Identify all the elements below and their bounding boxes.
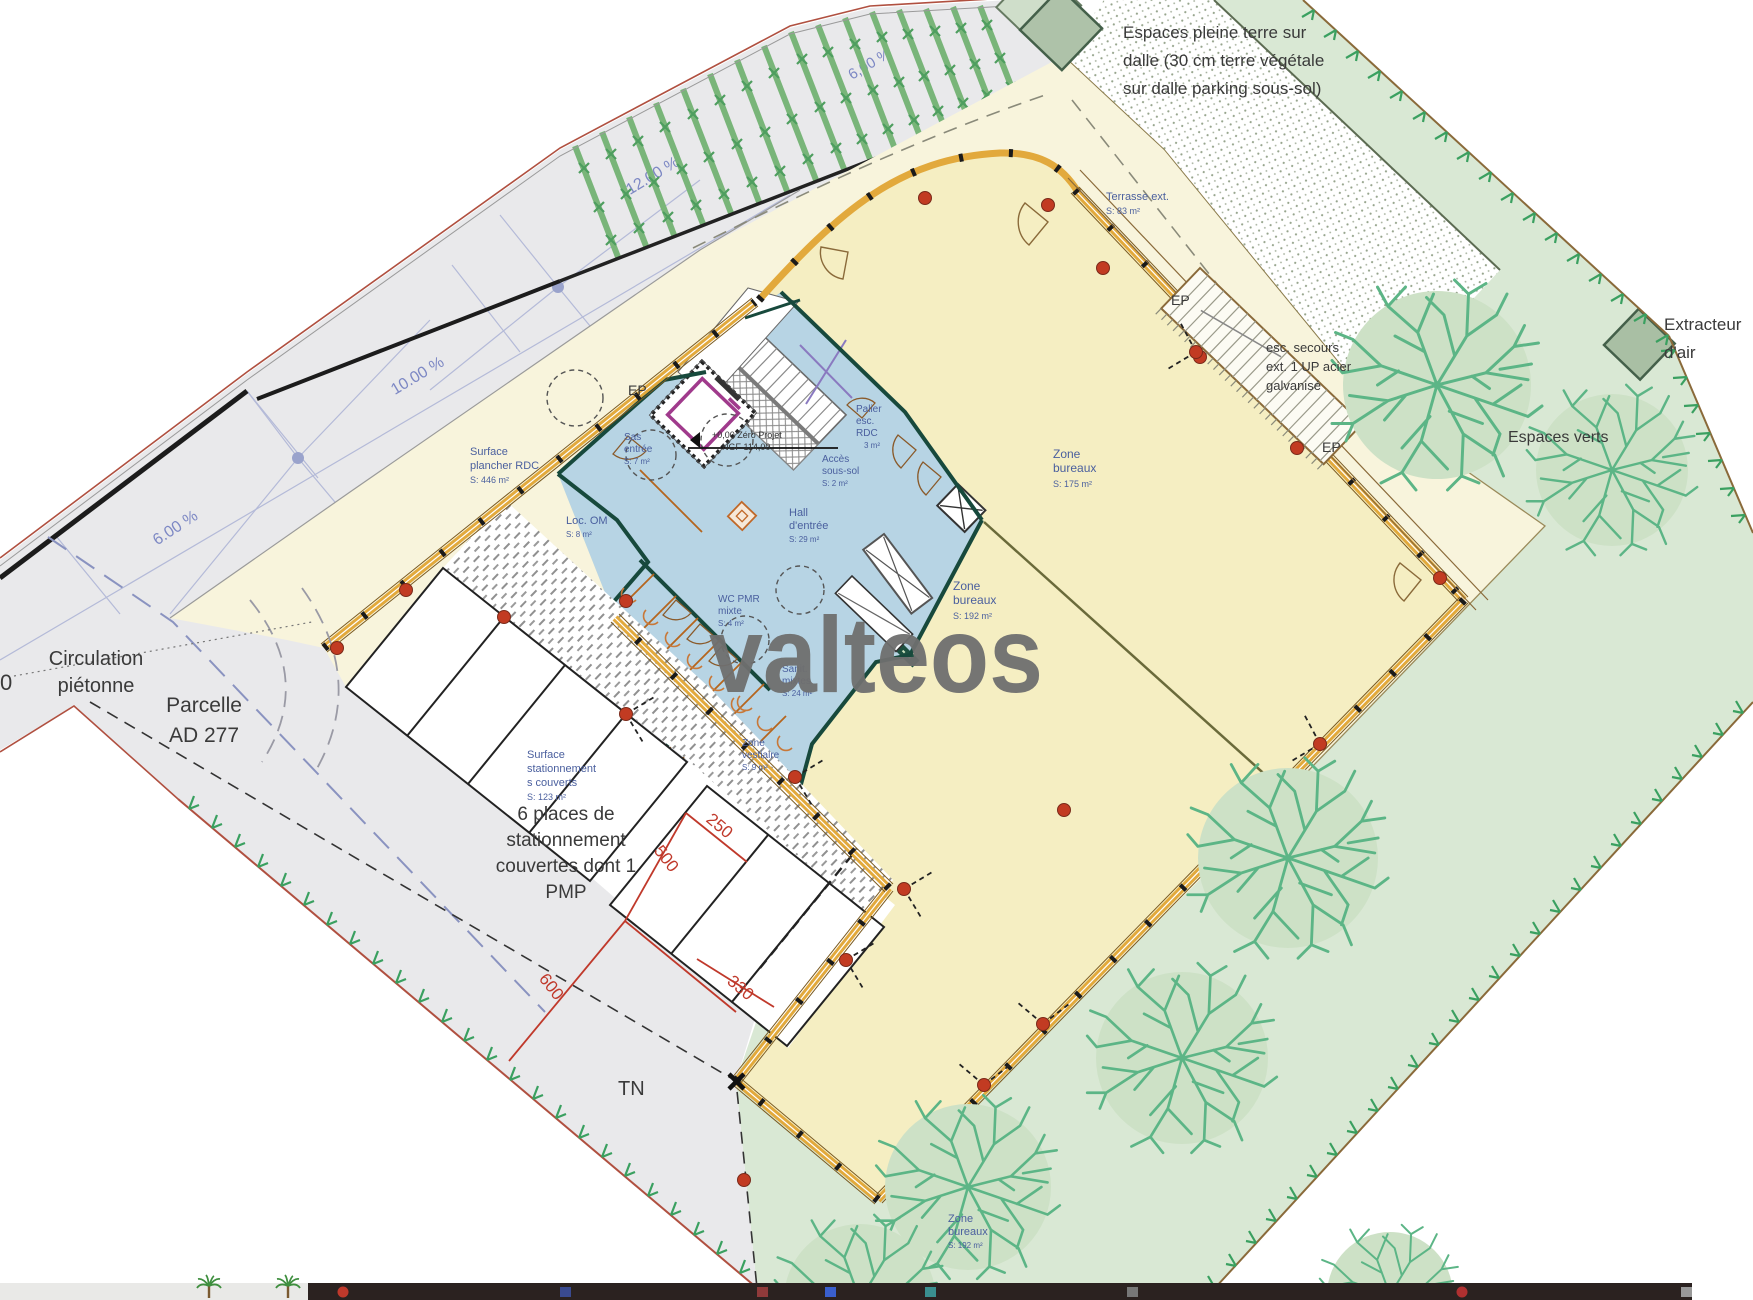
svg-text:S: 175 m²: S: 175 m² [1053, 479, 1092, 489]
svg-text:EP: EP [1322, 439, 1341, 455]
svg-text:6 places de: 6 places de [517, 804, 614, 825]
svg-text:dalle (30 cm terre végétale: dalle (30 cm terre végétale [1123, 51, 1324, 70]
svg-text:Sas: Sas [624, 432, 641, 443]
svg-text:S: 7 m²: S: 7 m² [624, 457, 650, 466]
svg-text:entrée: entrée [624, 444, 653, 455]
svg-text:PMP: PMP [545, 882, 586, 903]
svg-text:Terrasse ext.: Terrasse ext. [1106, 191, 1169, 203]
svg-text:stationnement: stationnement [506, 830, 626, 851]
svg-text:Palier: Palier [856, 404, 882, 415]
svg-text:valteos: valteos [709, 594, 1043, 715]
svg-text:S: 83 m²: S: 83 m² [1106, 206, 1140, 216]
svg-text:vestiaire: vestiaire [742, 750, 780, 761]
svg-text:S: 9 m²: S: 9 m² [742, 763, 768, 772]
svg-text:Zone: Zone [1053, 447, 1081, 461]
svg-text:bureaux: bureaux [948, 1226, 988, 1238]
svg-text:3 m²: 3 m² [864, 441, 880, 450]
svg-text:piétonne: piétonne [58, 675, 135, 697]
svg-text:Surface: Surface [470, 446, 508, 458]
svg-text:Zone: Zone [742, 738, 765, 749]
svg-text:Loc. OM: Loc. OM [566, 515, 608, 527]
svg-text:Accès: Accès [822, 454, 849, 465]
svg-text:TN: TN [618, 1078, 645, 1100]
svg-text:+0,00 Zéro Projet: +0,00 Zéro Projet [712, 430, 782, 440]
svg-text:couvertes dont 1: couvertes dont 1 [496, 856, 636, 877]
svg-text:EP: EP [628, 382, 647, 398]
svg-text:s couverts: s couverts [527, 777, 578, 789]
svg-text:esc. secours: esc. secours [1266, 340, 1339, 355]
svg-text:AD 277: AD 277 [169, 724, 239, 747]
svg-text:Surface: Surface [527, 749, 565, 761]
svg-text:d'entrée: d'entrée [789, 520, 828, 532]
svg-text:S: 2 m²: S: 2 m² [822, 479, 848, 488]
svg-text:NGF 114,00: NGF 114,00 [722, 442, 770, 452]
svg-text:plancher RDC: plancher RDC [470, 460, 539, 472]
svg-text:galvanisé: galvanisé [1266, 378, 1321, 393]
svg-text:RDC: RDC [856, 428, 878, 439]
svg-text:S: 123 m²: S: 123 m² [527, 792, 566, 802]
svg-text:bureaux: bureaux [1053, 461, 1096, 475]
svg-text:S: 446 m²: S: 446 m² [470, 475, 509, 485]
svg-text:sur dalle parking sous-sol): sur dalle parking sous-sol) [1123, 79, 1321, 98]
svg-text:S: 192 m²: S: 192 m² [948, 1241, 983, 1250]
svg-text:Espaces verts: Espaces verts [1508, 429, 1608, 446]
svg-text:d'air: d'air [1664, 343, 1696, 362]
svg-text:sous-sol: sous-sol [822, 466, 859, 477]
svg-text:Parcelle: Parcelle [166, 694, 242, 717]
svg-text:Circulation: Circulation [49, 648, 143, 670]
svg-text:Hall: Hall [789, 507, 808, 519]
svg-text:Zone: Zone [948, 1213, 973, 1225]
svg-text:Extracteur: Extracteur [1664, 315, 1742, 334]
svg-text:ext. 1 UP acier: ext. 1 UP acier [1266, 359, 1352, 374]
svg-text:0: 0 [0, 670, 12, 695]
svg-text:S: 8 m²: S: 8 m² [566, 530, 592, 539]
svg-text:Espaces pleine terre sur: Espaces pleine terre sur [1123, 23, 1307, 42]
svg-text:S: 29 m²: S: 29 m² [789, 535, 820, 544]
svg-text:Zone: Zone [953, 579, 981, 593]
svg-text:esc.: esc. [856, 416, 874, 427]
svg-text:EP: EP [1171, 292, 1190, 308]
svg-text:stationnement: stationnement [527, 763, 596, 775]
